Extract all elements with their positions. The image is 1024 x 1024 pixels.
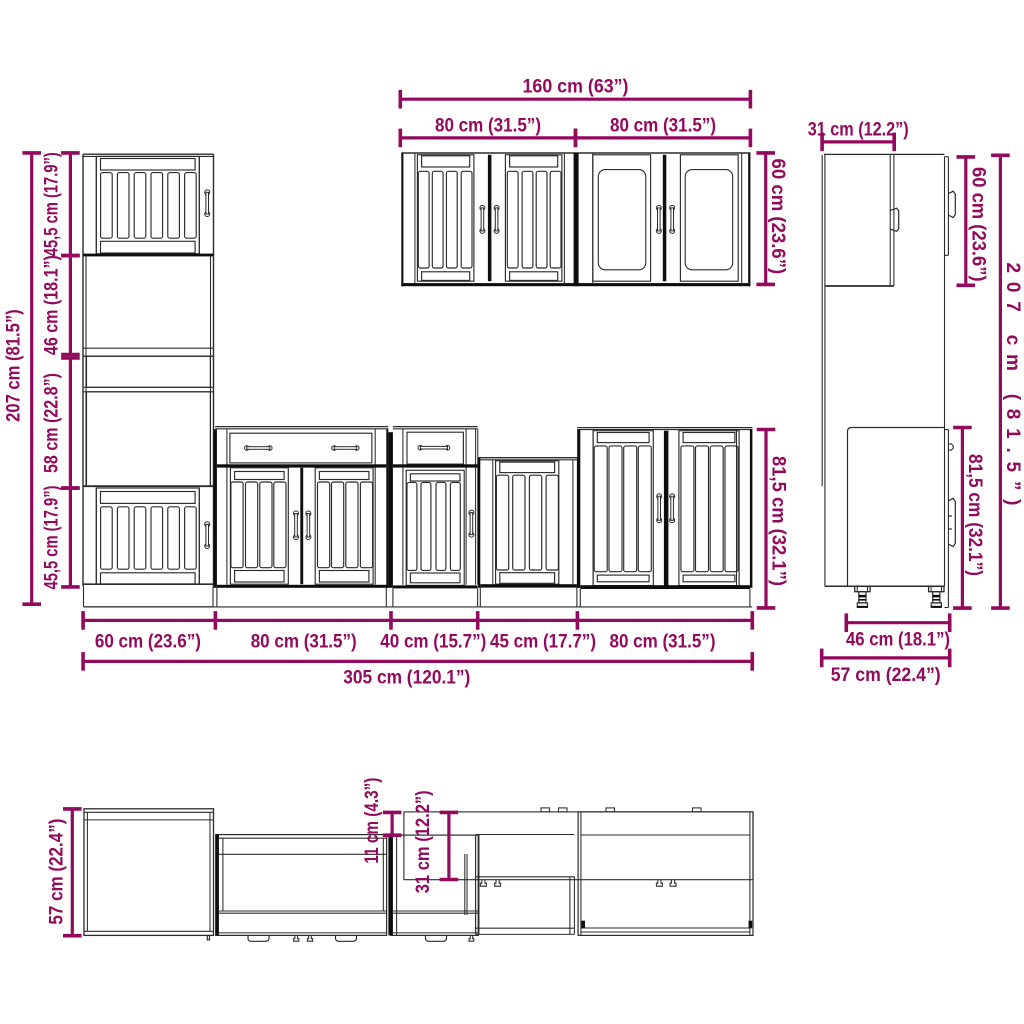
- svg-text:80 cm (31.5”): 80 cm (31.5”): [435, 115, 541, 136]
- svg-text:207 cm (81.5”): 207 cm (81.5”): [4, 309, 25, 422]
- svg-text:81,5 cm (32.1”): 81,5 cm (32.1”): [964, 454, 985, 576]
- svg-text:45 cm (17.7”): 45 cm (17.7”): [490, 632, 596, 653]
- svg-text:11 cm (4.3”): 11 cm (4.3”): [362, 778, 383, 864]
- svg-text:58 cm (22.8”): 58 cm (22.8”): [42, 373, 63, 473]
- svg-text:80 cm (31.5”): 80 cm (31.5”): [251, 632, 357, 653]
- svg-text:57 cm (22.4”): 57 cm (22.4”): [47, 819, 68, 925]
- svg-text:31 cm (12.2”): 31 cm (12.2”): [413, 790, 434, 893]
- svg-text:80 cm (31.5”): 80 cm (31.5”): [610, 632, 716, 653]
- svg-text:57 cm (22.4”): 57 cm (22.4”): [831, 665, 941, 686]
- svg-text:46 cm (18.1”): 46 cm (18.1”): [42, 255, 63, 355]
- svg-text:305 cm (120.1”): 305 cm (120.1”): [343, 667, 470, 688]
- svg-text:60 cm (23.6”): 60 cm (23.6”): [967, 167, 988, 282]
- svg-text:45,5 cm (17.9”): 45,5 cm (17.9”): [42, 486, 63, 590]
- svg-text:81,5 cm (32.1”): 81,5 cm (32.1”): [768, 456, 789, 586]
- svg-text:60 cm (23.6”): 60 cm (23.6”): [767, 159, 788, 275]
- svg-text:45,5 cm (17.9”): 45,5 cm (17.9”): [42, 152, 63, 256]
- svg-text:80 cm (31.5”): 80 cm (31.5”): [610, 115, 716, 136]
- svg-text:60 cm (23.6”): 60 cm (23.6”): [95, 632, 201, 653]
- svg-text:40 cm (15.7”): 40 cm (15.7”): [380, 632, 486, 653]
- svg-text:46 cm (18.1”): 46 cm (18.1”): [846, 630, 950, 651]
- svg-text:31 cm (12.2”): 31 cm (12.2”): [808, 120, 909, 141]
- svg-text:160 cm (63”): 160 cm (63”): [523, 77, 629, 98]
